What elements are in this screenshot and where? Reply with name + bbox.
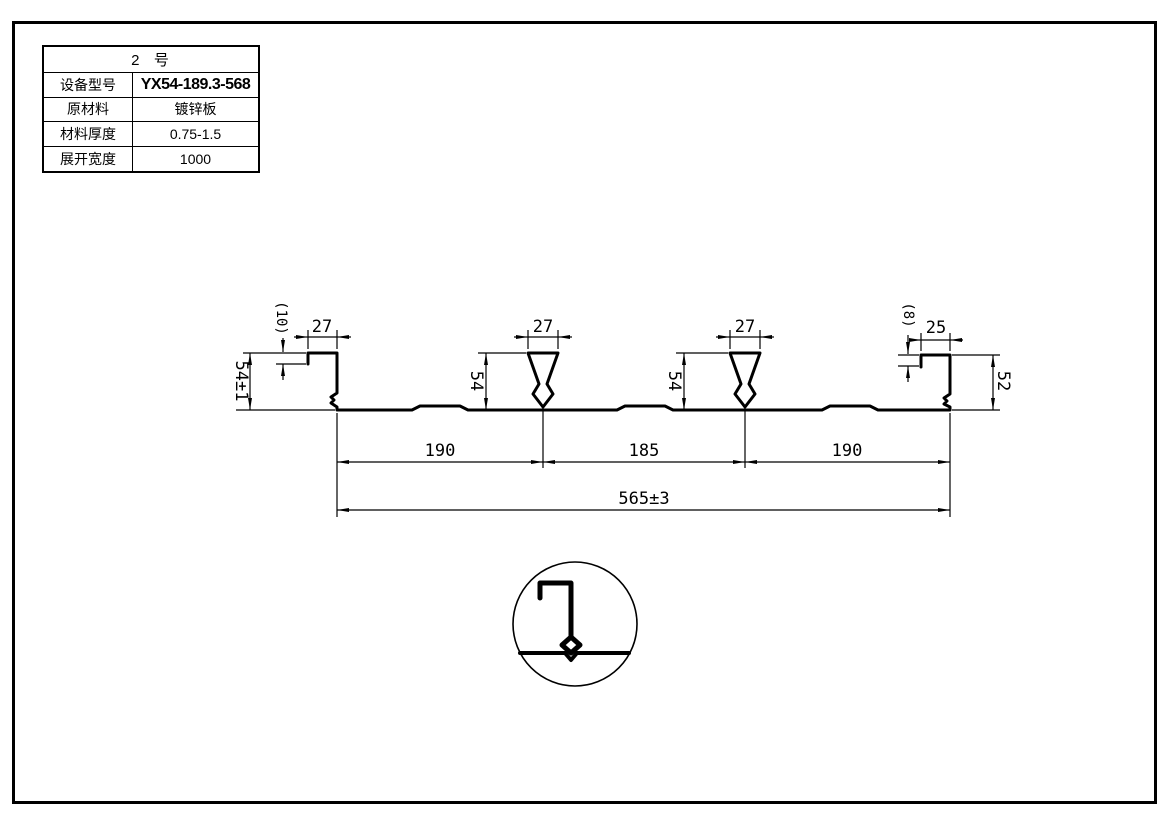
dim-right-hook-depth: (8) <box>900 302 916 327</box>
dim-pitch-left: 190 <box>425 441 456 461</box>
dim-left-hook-depth: (10) <box>273 301 289 335</box>
drawing-sheet: { "drawing": { "table": { "title": "2 号"… <box>0 0 1169 827</box>
dim-right-lip-width: 25 <box>926 318 946 338</box>
dim-rib2-width: 27 <box>735 317 755 337</box>
detail-circle <box>513 562 637 686</box>
profile-drawing: 27 (10) 54±1 27 54 27 54 (8) 25 52 190 1… <box>0 0 1169 827</box>
dovetail-rib-2 <box>730 353 760 407</box>
dovetail-rib-1 <box>528 353 558 407</box>
dim-pitch-right: 190 <box>832 441 863 461</box>
dim-overall-width: 565±3 <box>618 489 669 509</box>
dim-pitch-mid: 185 <box>629 441 660 461</box>
dim-rib1-height: 54 <box>466 371 486 391</box>
detail-seam-profile <box>540 583 580 653</box>
dim-rib1-width: 27 <box>533 317 553 337</box>
dim-rib2-height: 54 <box>664 371 684 391</box>
dim-left-height: 54±1 <box>231 361 251 402</box>
detail-baseline <box>520 653 629 660</box>
detail-circle-outline <box>513 562 637 686</box>
profile-outline <box>308 353 950 410</box>
dim-right-height: 52 <box>993 371 1013 391</box>
dim-left-lip-width: 27 <box>312 317 332 337</box>
